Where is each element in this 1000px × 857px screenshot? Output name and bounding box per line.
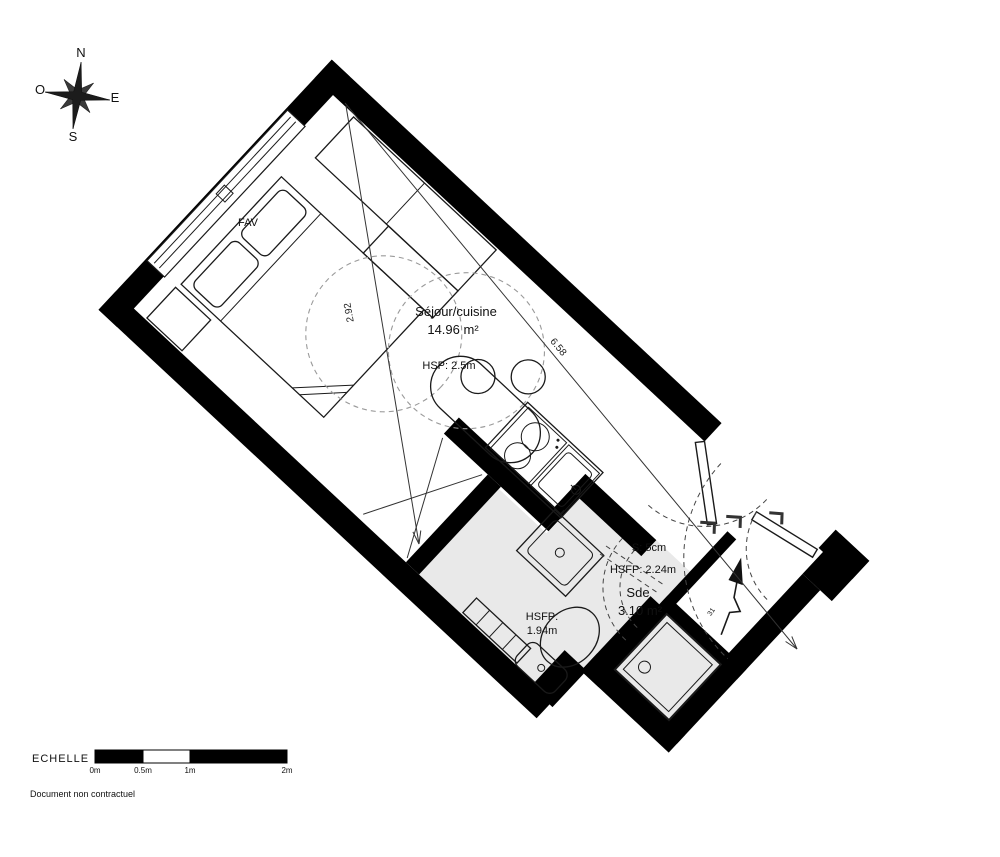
bathroom-name: Sde: [626, 585, 649, 600]
entry-door: [750, 500, 820, 567]
compass-east-label: E: [111, 90, 120, 105]
bathroom-area: 3.10 m²: [618, 603, 663, 618]
bathroom-hsfp-low-note-1: HSFP:: [526, 611, 558, 623]
bathroom-hsfp-low-note-2: 1.94m: [527, 625, 558, 637]
scale-tick-2: 2m: [281, 766, 292, 775]
scale-tick-1: 1m: [184, 766, 195, 775]
scale-title: ECHELLE: [32, 753, 89, 765]
entry-door: [658, 437, 767, 544]
footer-disclaimer: Document non contractuel: [30, 789, 135, 799]
scale-bar: ECHELLE 0m 0.5m 1m 2m: [32, 750, 293, 775]
compass-north-label: N: [76, 45, 85, 60]
scale-tick-0: 0m: [89, 766, 100, 775]
living-room-area: 14.96 m²: [427, 322, 479, 337]
dimension-length-label: 6.58: [547, 336, 568, 358]
compass-rose-icon: N E S O: [35, 45, 120, 144]
floor-plan-canvas: N E S O: [0, 0, 1000, 857]
window-fav: [147, 110, 305, 277]
living-room-name: Séjour/cuisine: [415, 304, 497, 319]
stool: [504, 353, 552, 401]
entry-mark-label: 31: [707, 607, 717, 617]
compass-west-label: O: [35, 82, 45, 97]
walls: [99, 60, 870, 811]
compass-south-label: S: [69, 129, 78, 144]
apartment-plan: [99, 60, 870, 811]
window-label: FAV: [238, 217, 259, 229]
bathroom-slab-note: S: 5cm: [632, 542, 666, 554]
bathroom-hsfp-high-note: HSFP: 2.24m: [610, 564, 676, 576]
dimension-width-label: 2.92: [342, 301, 356, 323]
scale-tick-05: 0.5m: [134, 766, 152, 775]
floor-plan-page: N E S O: [0, 0, 1000, 857]
living-room-height: HSP: 2.5m: [422, 360, 475, 372]
